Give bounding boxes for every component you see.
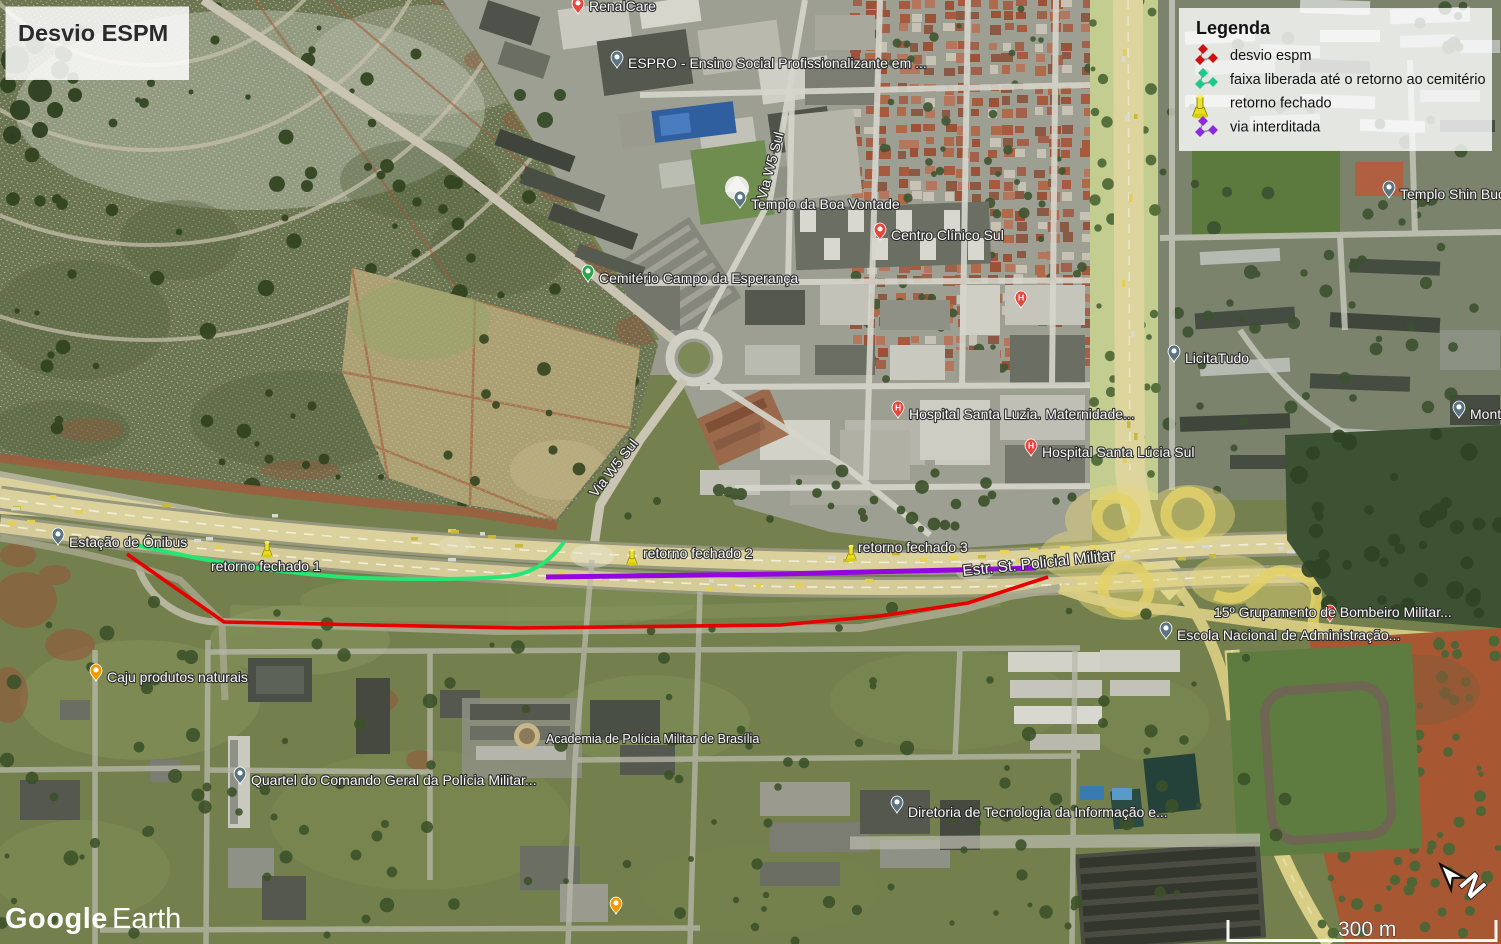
svg-text:Academia de Polícia Militar de: Academia de Polícia Militar de Brasília	[546, 732, 759, 746]
svg-text:faixa liberada até o retorno a: faixa liberada até o retorno ao cemitéri…	[1230, 72, 1486, 88]
svg-text:Diretoria de Tecnologia da Inf: Diretoria de Tecnologia da Informação e.…	[908, 804, 1168, 820]
svg-text:retorno fechado: retorno fechado	[1230, 96, 1332, 112]
svg-text:Estação de Ônibus: Estação de Ônibus	[69, 534, 187, 550]
svg-text:Google: Google	[5, 903, 108, 935]
svg-text:H: H	[1028, 440, 1034, 450]
svg-text:RenalCare: RenalCare	[589, 0, 656, 14]
svg-text:ESPRO - Ensino Social Profissi: ESPRO - Ensino Social Profissionalizante…	[628, 55, 927, 71]
svg-text:Templo da Boa Vontade: Templo da Boa Vontade	[751, 196, 900, 212]
svg-text:retorno fechado 3: retorno fechado 3	[858, 539, 968, 555]
svg-text:desvio espm: desvio espm	[1230, 48, 1311, 64]
svg-text:LicitaTudo: LicitaTudo	[1185, 350, 1249, 366]
svg-text:Monte...: Monte...	[1470, 406, 1501, 422]
svg-text:Centro Clínico Sul: Centro Clínico Sul	[891, 227, 1004, 243]
svg-text:Escola Nacional de Administraç: Escola Nacional de Administração...	[1177, 627, 1400, 643]
svg-text:retorno fechado 1: retorno fechado 1	[211, 558, 321, 574]
svg-text:H: H	[895, 402, 901, 412]
svg-text:Hospital Santa Lúcia Sul: Hospital Santa Lúcia Sul	[1042, 444, 1195, 460]
svg-text:H: H	[1018, 292, 1024, 302]
svg-text:15º Grupamento de Bombeiro Mil: 15º Grupamento de Bombeiro Militar...	[1214, 604, 1452, 620]
svg-text:retorno fechado 2: retorno fechado 2	[643, 545, 753, 561]
svg-text:via interditada: via interditada	[1230, 120, 1321, 136]
svg-text:300 m: 300 m	[1338, 918, 1396, 941]
svg-text:Templo Shin Bud...: Templo Shin Bud...	[1400, 186, 1501, 202]
svg-text:Cemitério Campo da Esperança: Cemitério Campo da Esperança	[599, 270, 798, 286]
svg-text:Hospital Santa Luzia. Maternid: Hospital Santa Luzia. Maternidade...	[909, 406, 1135, 422]
svg-text:Earth: Earth	[112, 903, 181, 935]
svg-text:Legenda: Legenda	[1196, 18, 1271, 38]
svg-text:Quartel do Comando Geral da Po: Quartel do Comando Geral da Polícia Mili…	[251, 772, 537, 788]
svg-text:Desvio ESPM: Desvio ESPM	[18, 20, 168, 46]
svg-text:Caju produtos naturais: Caju produtos naturais	[107, 669, 248, 685]
